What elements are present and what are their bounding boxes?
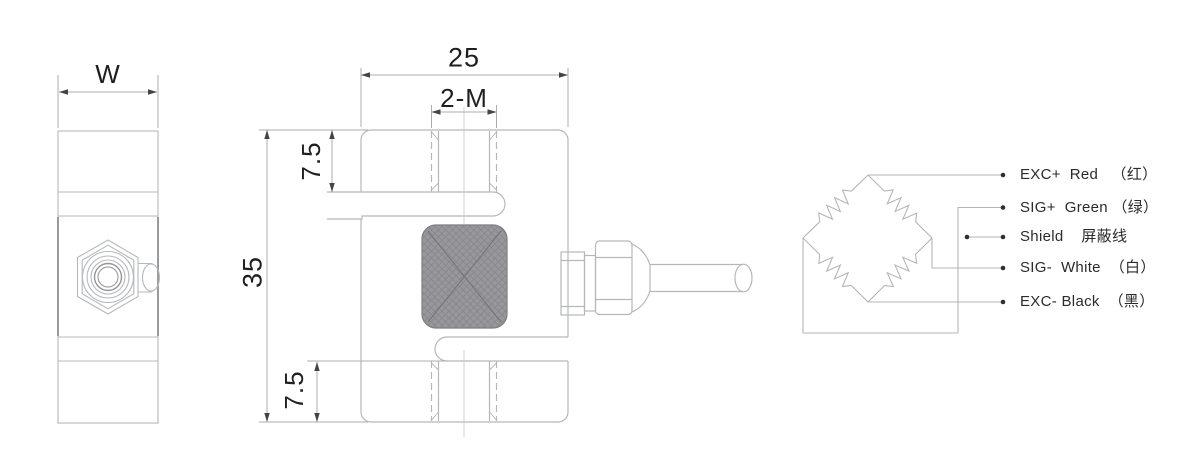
top-slot [327,192,505,219]
wire-sig-plus [803,208,1001,334]
wire-sig-minus [932,238,1001,268]
wire-label-sig-plus: SIG+ Green （绿） [1020,199,1158,217]
cable-gland-side [561,241,752,315]
dim-label-width-25: 25 [448,45,480,72]
cable-end-side [143,264,160,291]
terminal-dots [965,173,1006,305]
terminal-exc-plus [1001,173,1006,178]
bridge-wires [803,175,1001,333]
dim-label-top-7-5: 7.5 [298,141,324,180]
cable-gland-front [78,240,160,314]
dim-label-thread-2m: 2-M [440,85,488,111]
dim-label-w: W [95,61,121,87]
terminal-sig-plus [1001,205,1006,210]
terminal-exc-minus [1001,300,1006,305]
wire-label-exc-minus: EXC- Black （黑） [1020,293,1155,311]
bridge-resistor-bottom-right [868,238,932,302]
gland-flange [561,252,585,315]
front-view-dimensions [259,68,568,422]
front-view [327,107,752,437]
dim-label-bottom-7-5: 7.5 [281,370,307,409]
cable [650,265,743,292]
terminal-shield [1001,235,1006,240]
gland-taper [632,244,650,312]
wire-label-shield: Shield 屏蔽线 [1020,228,1127,246]
strain-gauge-pad [422,225,507,328]
bottom-slot [435,337,568,361]
cable-end [735,264,752,292]
bridge-resistor-top-right [868,175,932,238]
shield-node-dot [965,235,970,240]
wire-label-exc-plus: EXC+ Red （红） [1020,166,1157,184]
bridge-circuit [803,173,1005,333]
bridge-resistor-top-left [803,175,868,238]
gland-hex-inner [82,245,134,309]
dim-label-height-35: 35 [240,256,267,288]
bridge-resistor-bottom-left [803,238,868,302]
engineering-drawing: W 25 2-M 7.5 35 7.5 EXC+ Red （红） SIG+ Gr… [0,0,1200,474]
side-view [58,131,160,423]
terminal-sig-minus [1001,266,1006,271]
gland-nut [596,241,633,315]
wire-label-sig-minus: SIG- White （白） [1020,259,1156,277]
